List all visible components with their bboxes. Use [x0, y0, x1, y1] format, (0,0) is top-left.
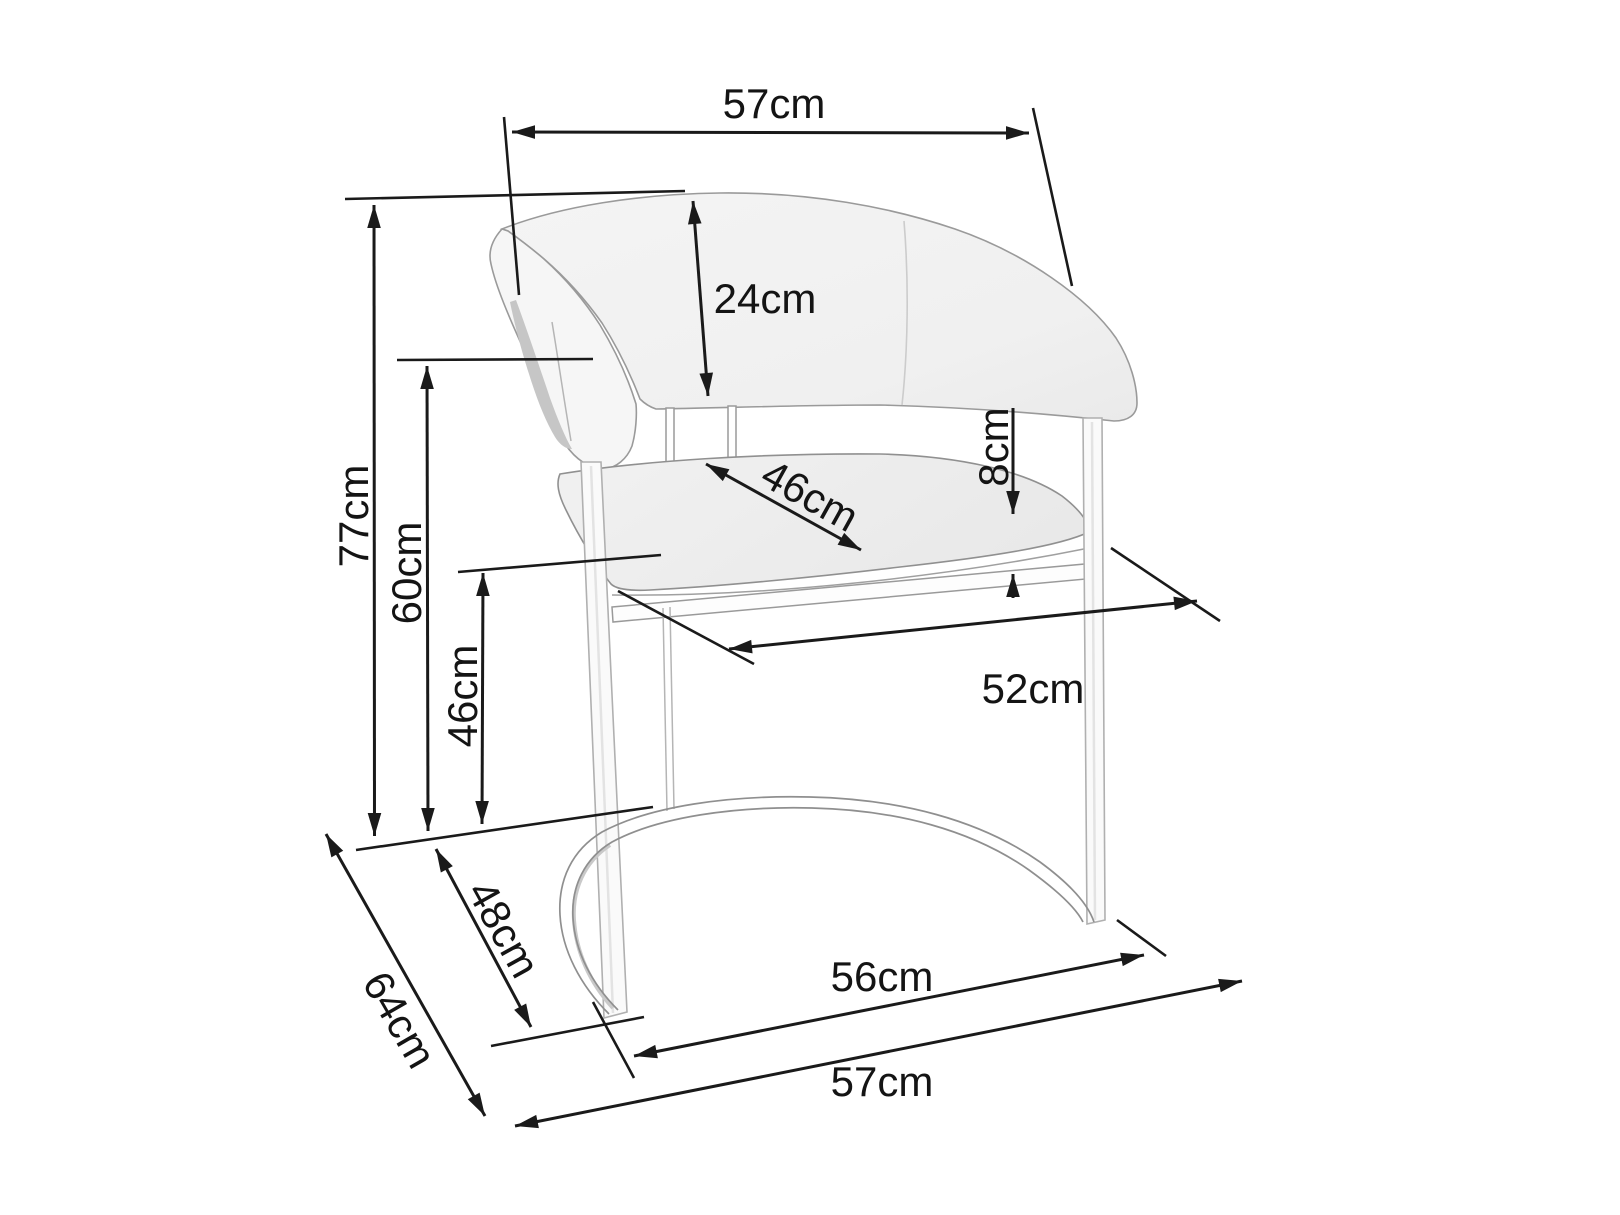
svg-text:60cm: 60cm [383, 522, 430, 625]
svg-text:57cm: 57cm [831, 1058, 934, 1105]
svg-text:57cm: 57cm [723, 80, 826, 127]
svg-text:56cm: 56cm [831, 953, 934, 1000]
svg-text:48cm: 48cm [458, 873, 549, 986]
svg-text:77cm: 77cm [330, 465, 377, 568]
svg-text:8cm: 8cm [970, 407, 1017, 486]
svg-text:24cm: 24cm [714, 275, 817, 322]
svg-text:52cm: 52cm [982, 665, 1085, 712]
svg-text:46cm: 46cm [439, 645, 486, 748]
